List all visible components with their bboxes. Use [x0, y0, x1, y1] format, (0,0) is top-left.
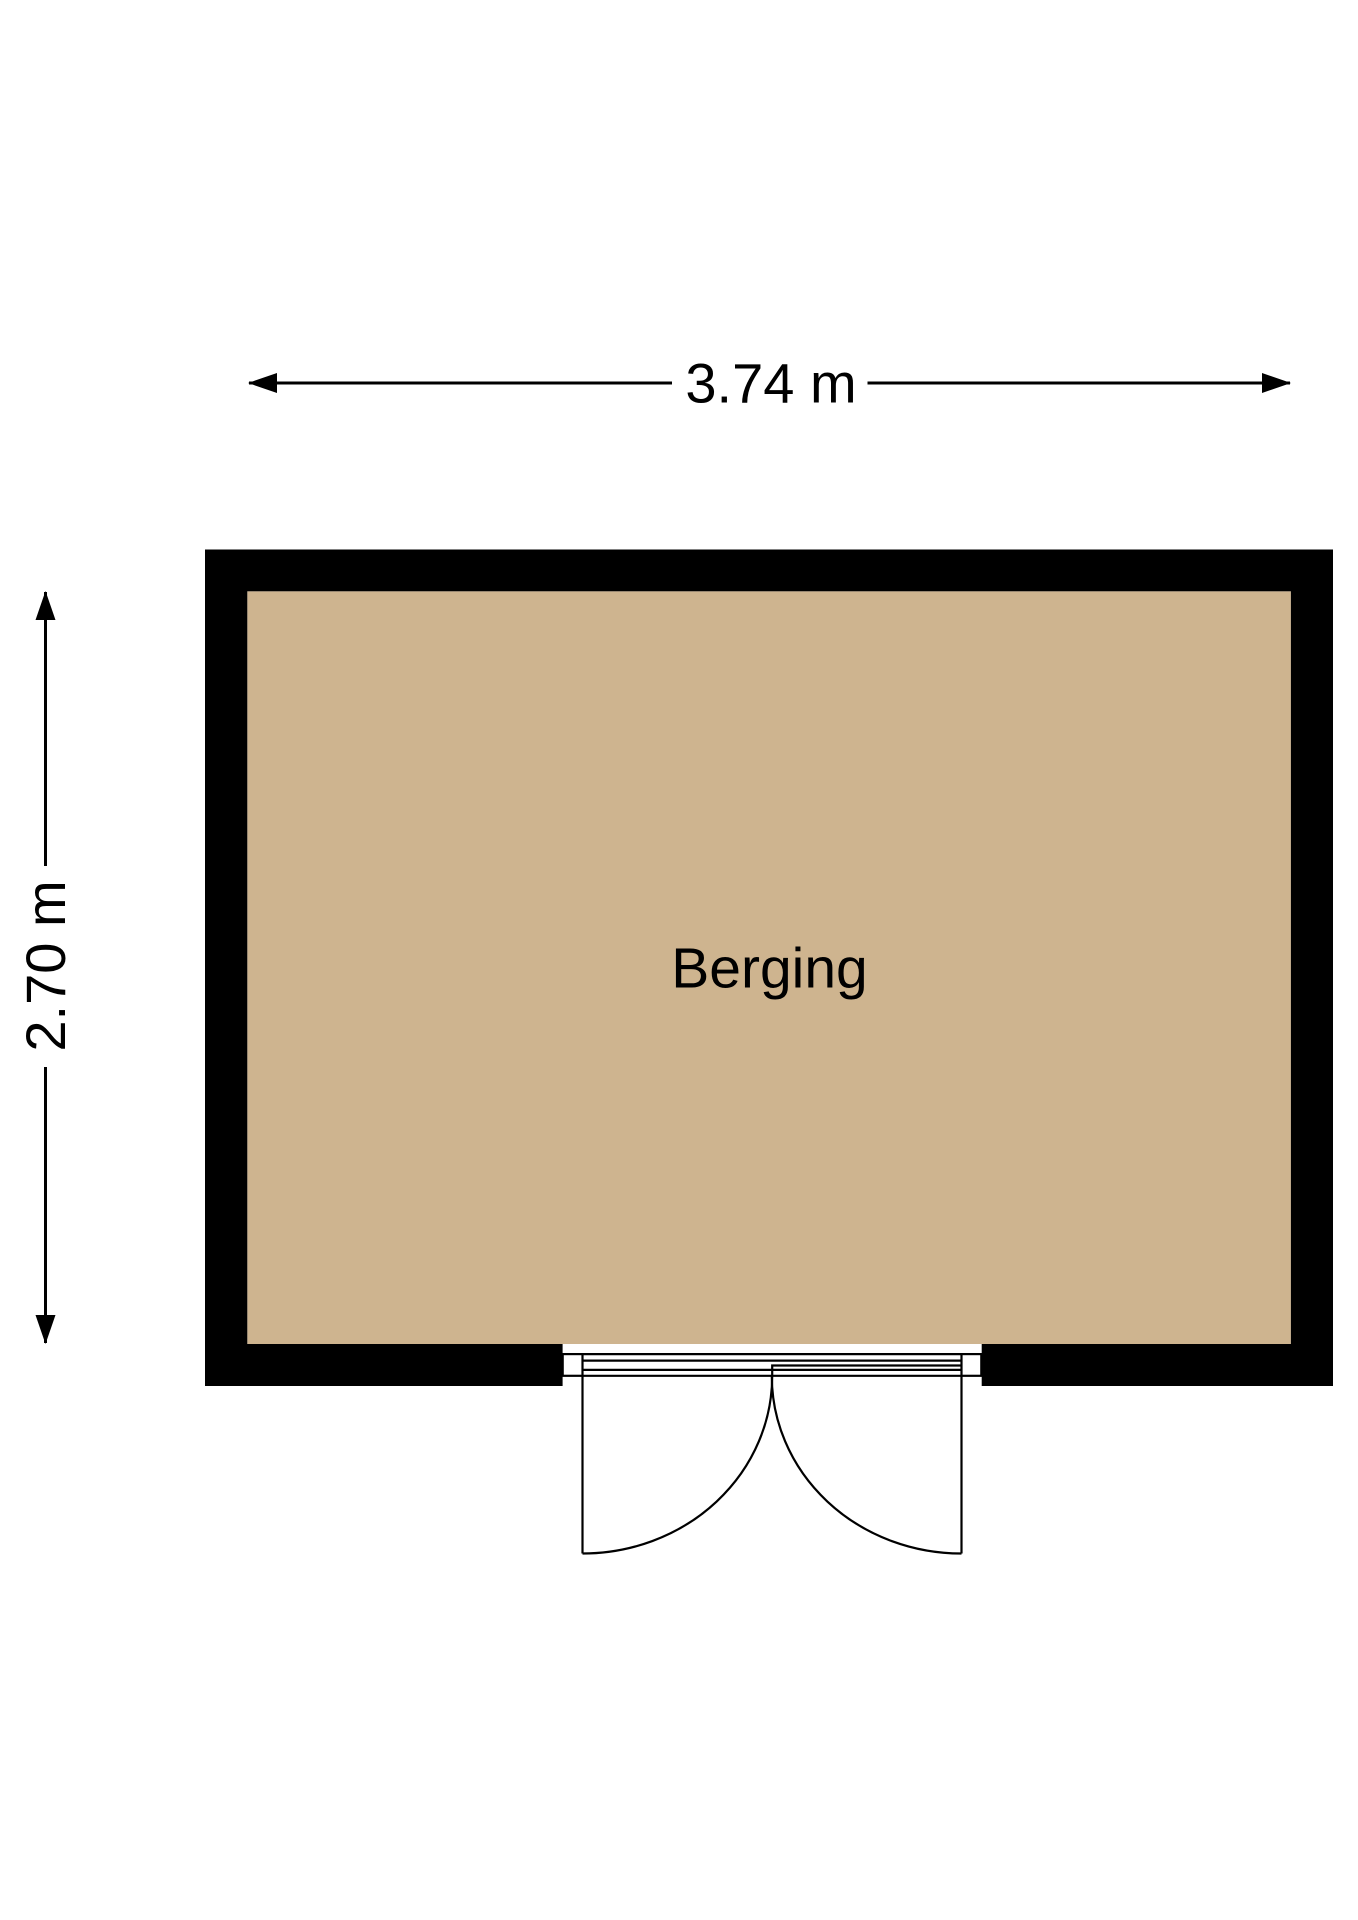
svg-text:3.74 m: 3.74 m — [685, 352, 856, 415]
svg-text:Berging: Berging — [671, 936, 867, 1000]
svg-text:2.70 m: 2.70 m — [14, 880, 77, 1051]
